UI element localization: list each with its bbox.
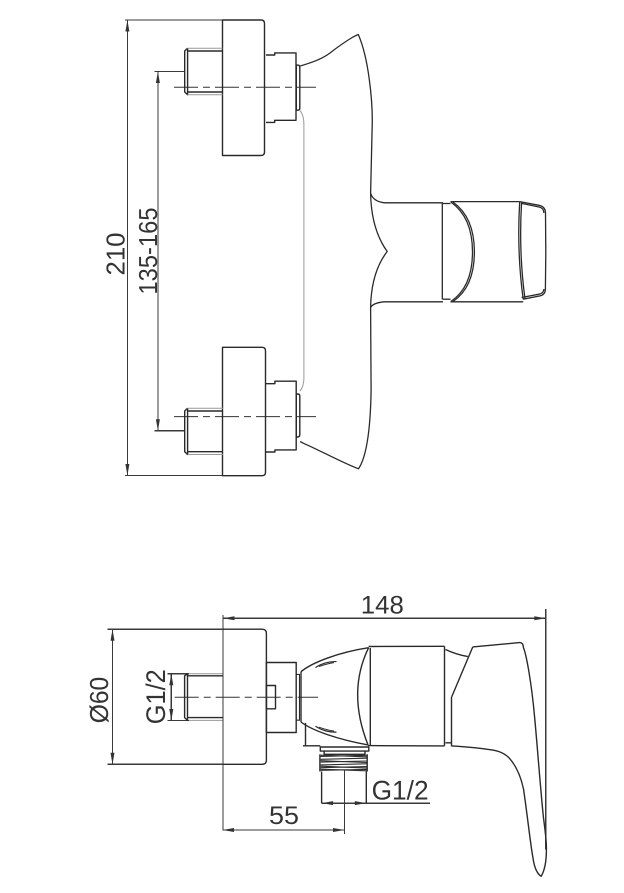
svg-text:148: 148 bbox=[361, 592, 404, 620]
svg-text:G1/2: G1/2 bbox=[372, 776, 429, 806]
svg-text:210: 210 bbox=[101, 233, 131, 276]
svg-text:G1/2: G1/2 bbox=[141, 669, 171, 724]
svg-text:135-165: 135-165 bbox=[133, 208, 163, 295]
svg-text:Ø60: Ø60 bbox=[84, 677, 114, 724]
svg-text:55: 55 bbox=[269, 802, 299, 830]
